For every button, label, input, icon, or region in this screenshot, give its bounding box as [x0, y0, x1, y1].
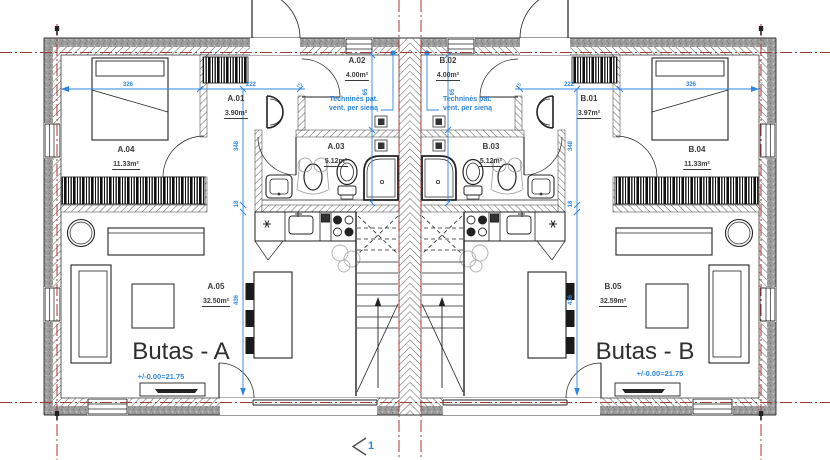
- room-id: B.04: [683, 146, 711, 154]
- dim-a-living-depth: 436: [234, 295, 240, 305]
- room-area: 11.33m²: [683, 161, 711, 169]
- room-area: 4.00m²: [436, 72, 460, 80]
- dim-a-hall-width: 222: [246, 82, 256, 88]
- apartment-a-title: Butas - A: [132, 338, 229, 366]
- room-label-b04: B.04 11.33m²: [683, 146, 711, 171]
- apartment-a-level: +/-0.00=21.75: [138, 372, 185, 381]
- room-id: A.04: [112, 146, 140, 154]
- room-id: B.01: [577, 95, 601, 103]
- room-id: B.02: [436, 57, 460, 65]
- room-area: 4.00m²: [345, 72, 369, 80]
- room-label-b02: B.02 4.00m²: [436, 57, 460, 82]
- room-area: 32.50m²: [202, 298, 230, 306]
- floor-plan-drawing: [0, 0, 830, 460]
- dim-a-hall-depth: 348: [234, 141, 240, 151]
- apartment-b-level: +/-0.00=21.75: [637, 369, 684, 378]
- room-label-b03: B.03 5.12m²: [479, 143, 503, 168]
- vent-note-b: Techninės pat. vent. per sieną: [443, 96, 492, 113]
- dim-a-duct: 65: [363, 89, 369, 96]
- room-id: A.03: [324, 143, 348, 151]
- room-label-a01: A.01 3.90m²: [224, 95, 248, 120]
- apartment-b-title: Butas - B: [596, 338, 695, 366]
- room-label-b01: B.01 3.97m²: [577, 95, 601, 120]
- room-area: 3.90m²: [224, 110, 248, 118]
- room-label-a05: A.05 32.50m²: [202, 283, 230, 308]
- dim-b-bedroom-width: 326: [686, 82, 696, 88]
- dim-a-wall: 18: [234, 201, 240, 208]
- dim-a-bedroom-width: 326: [123, 82, 133, 88]
- room-label-a02: A.02 4.00m²: [345, 57, 369, 82]
- room-area: 11.33m²: [112, 161, 140, 169]
- room-id: B.05: [599, 283, 627, 291]
- room-area: 5.12m²: [479, 158, 503, 166]
- room-area: 5.12m²: [324, 158, 348, 166]
- section-marker-number: 1: [368, 440, 374, 452]
- room-area: 3.97m²: [577, 110, 601, 118]
- vent-note-a: Techninės pat. vent. per sieną: [329, 96, 378, 113]
- room-id: A.01: [224, 95, 248, 103]
- room-id: A.02: [345, 57, 369, 65]
- vent-note-line: Techninės pat.: [329, 96, 378, 105]
- room-label-a03: A.03 5.12m²: [324, 143, 348, 168]
- dim-b-wall: 18: [568, 201, 574, 208]
- dim-b-hall-width: 222: [564, 82, 574, 88]
- room-area: 32.59m²: [599, 298, 627, 306]
- room-id: A.05: [202, 283, 230, 291]
- floor-plan-page: A.01 3.90m² A.02 4.00m² A.03 5.12m² A.04…: [0, 0, 830, 460]
- dim-b-duct: 65: [450, 89, 456, 96]
- dim-b-hall-depth: 348: [568, 141, 574, 151]
- room-label-a04: A.04 11.33m²: [112, 146, 140, 171]
- room-label-b05: B.05 32.59m²: [599, 283, 627, 308]
- vent-note-line: vent. per sieną: [443, 105, 492, 114]
- room-id: B.03: [479, 143, 503, 151]
- vent-note-line: vent. per sieną: [329, 105, 378, 114]
- dim-b-living-depth: 436: [568, 295, 574, 305]
- section-marker-chevron: [353, 438, 366, 455]
- vent-note-line: Techninės pat.: [443, 96, 492, 105]
- apartment-b-geometry: [410, 0, 776, 415]
